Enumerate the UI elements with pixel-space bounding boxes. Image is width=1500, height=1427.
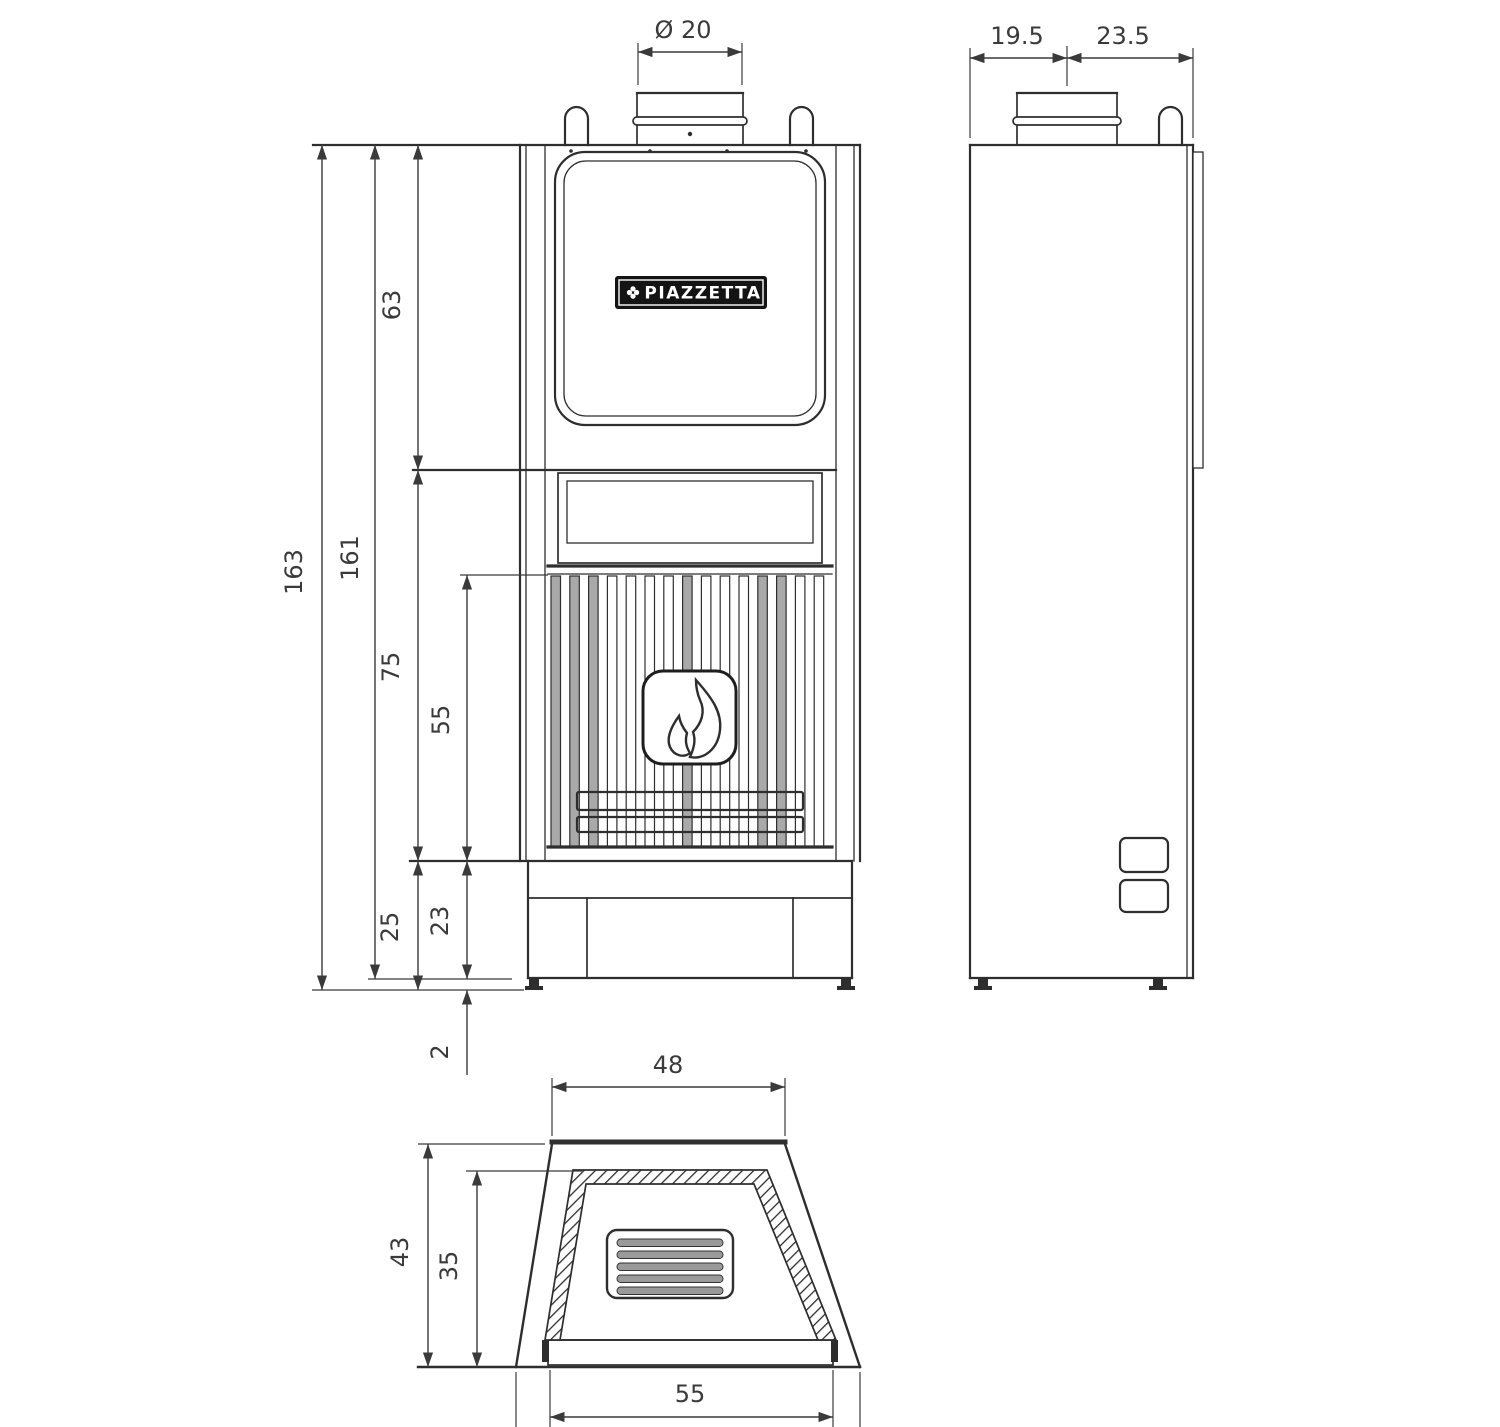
side-feet — [974, 978, 1167, 990]
top-base-strip — [548, 1340, 833, 1365]
plinth-with-feet-label: 25 — [376, 912, 404, 943]
front-base — [410, 861, 855, 990]
feet-height-label: 2 — [426, 1044, 454, 1059]
flue-diameter-label: Ø 20 — [654, 16, 711, 44]
flue-center-mark — [688, 132, 692, 136]
upper-section-label: 63 — [378, 290, 406, 321]
side-door-edge — [1193, 152, 1203, 468]
front-recessed-panel — [558, 473, 822, 563]
side-access-panels — [1120, 838, 1168, 912]
front-right-handle — [790, 107, 813, 145]
top-width-label: 48 — [653, 1051, 684, 1079]
logo-text: PIAZZETTA — [644, 284, 761, 304]
flue-offset-front-label: 19.5 — [990, 22, 1043, 50]
front-feet — [525, 978, 855, 990]
stove-dimension-drawing: Ø 20 — [0, 0, 1500, 1427]
front-grille — [548, 566, 832, 847]
front-view: Ø 20 — [313, 16, 860, 990]
front-flue-collar — [633, 93, 747, 145]
front-door: PIAZZETTA — [555, 152, 825, 425]
inner-depth-label: 35 — [435, 1251, 463, 1282]
brand-logo-plate: PIAZZETTA — [615, 276, 767, 309]
total-depth-label: 43 — [386, 1237, 414, 1268]
plinth-height-label: 23 — [426, 906, 454, 937]
side-view: 19.5 23.5 — [970, 22, 1203, 990]
base-width-label: 55 — [675, 1380, 706, 1408]
top-view: 48 43 35 — [386, 1051, 860, 1427]
total-height-label: 163 — [280, 549, 308, 595]
technical-drawing-page: Ø 20 — [0, 0, 1500, 1427]
side-flue-collar — [1013, 93, 1121, 145]
front-flue-dimension: Ø 20 — [638, 16, 742, 85]
side-handle — [1159, 107, 1182, 145]
top-base-width-dimension: 55 — [516, 1370, 860, 1427]
front-height-dimensions: 163 161 63 75 55 25 23 2 — [280, 145, 548, 1075]
body-height-label: 161 — [336, 535, 364, 581]
flue-offset-rear-label: 23.5 — [1096, 22, 1149, 50]
top-width-dimension: 48 — [552, 1051, 785, 1136]
top-louver-vent — [607, 1230, 733, 1298]
front-left-handle — [565, 107, 588, 145]
flame-icon — [643, 671, 736, 764]
grille-height-label: 55 — [427, 705, 455, 736]
firebox-section-label: 75 — [377, 652, 405, 683]
